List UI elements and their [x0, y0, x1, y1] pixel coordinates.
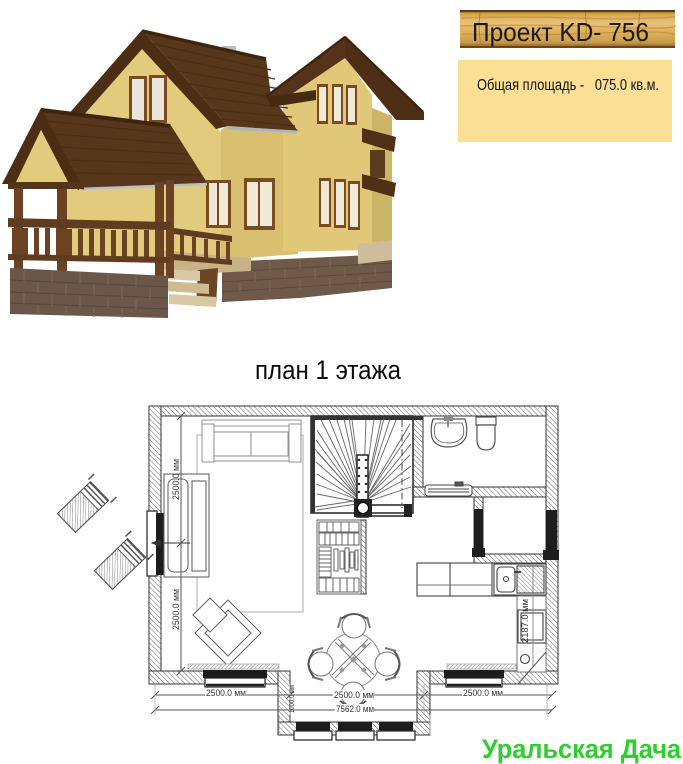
svg-text:Общая площадь - 075.0 кв.м.: Общая площадь - 075.0 кв.м.	[477, 77, 659, 94]
svg-text:2500.0 мм: 2500.0 мм	[171, 589, 182, 630]
svg-text:2500.0 мм: 2500.0 мм	[463, 688, 503, 699]
svg-text:1000.0 мм: 1000.0 мм	[287, 685, 296, 713]
svg-text:план 1 этажа: план 1 этажа	[255, 355, 402, 385]
svg-text:2500.0 мм: 2500.0 мм	[334, 690, 374, 701]
svg-text:2500.0 мм: 2500.0 мм	[171, 459, 182, 500]
svg-text:Проект KD- 756: Проект KD- 756	[472, 17, 649, 47]
svg-text:2500.0 мм: 2500.0 мм	[206, 688, 246, 699]
svg-text:7562.0 мм: 7562.0 мм	[336, 704, 374, 715]
svg-text:Уральская Дача: Уральская Дача	[482, 734, 681, 764]
svg-text:2187.0 мм: 2187.0 мм	[520, 599, 531, 643]
